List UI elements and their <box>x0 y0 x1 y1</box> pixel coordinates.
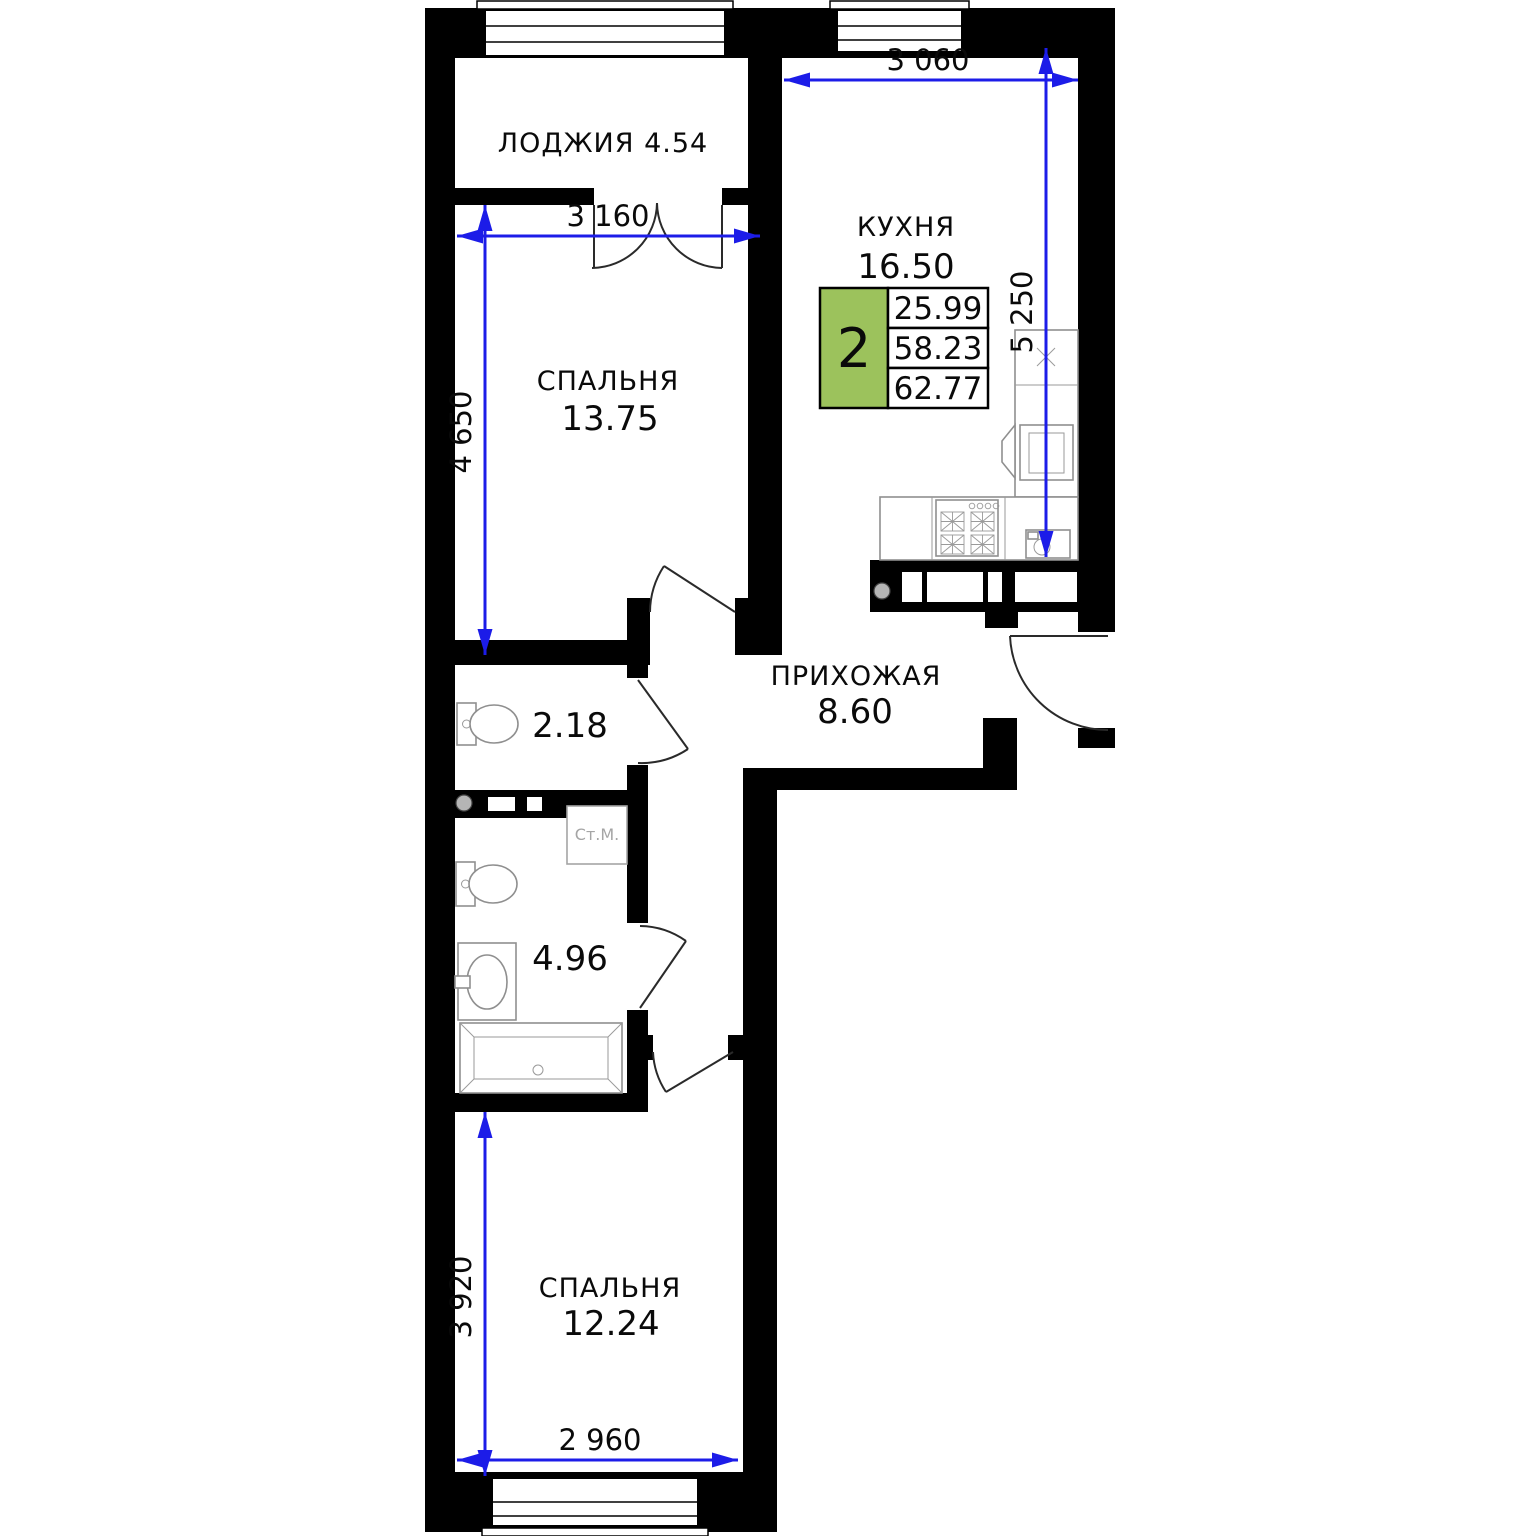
room-area-hallway: 8.60 <box>817 692 893 732</box>
bedroom2-window <box>482 1478 708 1536</box>
toilet-icon-bathroom <box>456 862 517 906</box>
room-label-bedroom1: СПАЛЬНЯ <box>537 366 680 397</box>
svg-text:3 060: 3 060 <box>886 43 969 77</box>
svg-text:2 960: 2 960 <box>558 1423 641 1457</box>
svg-text:4 650: 4 650 <box>444 390 478 473</box>
room-label-kitchen: КУХНЯ <box>857 212 955 243</box>
room-label-loggia: ЛОДЖИЯ 4.54 <box>498 128 708 159</box>
room-area-wc: 2.18 <box>532 706 608 746</box>
info-living-area: 25.99 <box>894 291 983 327</box>
room-area-bedroom1: 13.75 <box>561 399 658 439</box>
dim-bedroom2-width: 2 960 <box>457 1423 738 1468</box>
floor-plan-page: Ст.М. 3 060 5 250 3 160 <box>0 0 1536 1536</box>
info-usable-area: 58.23 <box>894 331 983 367</box>
dim-bedroom1-width: 3 160 <box>457 199 760 244</box>
bathtub-icon <box>460 1023 622 1093</box>
room-area-kitchen: 16.50 <box>857 247 954 287</box>
wc-door <box>638 680 688 763</box>
washing-machine-label: Ст.М. <box>575 825 619 844</box>
washing-machine: Ст.М. <box>567 806 627 864</box>
bedroom1-door <box>650 566 735 612</box>
room-area-bathroom: 4.96 <box>532 939 608 979</box>
kitchen-counter-icon <box>1002 330 1078 497</box>
loggia-window <box>477 1 733 56</box>
apartment-info-box: 2 25.99 58.23 62.77 <box>820 288 988 408</box>
svg-text:3 160: 3 160 <box>566 199 649 233</box>
toilet-icon-wc <box>457 703 518 745</box>
pipe-icon-bathroom <box>456 795 472 811</box>
stove-icon <box>936 500 999 556</box>
pipe-icon-kitchen <box>874 583 890 599</box>
floor-plan: Ст.М. 3 060 5 250 3 160 <box>0 0 1536 1536</box>
svg-text:5 250: 5 250 <box>1005 270 1039 353</box>
room-label-bedroom2: СПАЛЬНЯ <box>539 1273 682 1304</box>
svg-text:3 920: 3 920 <box>444 1255 478 1338</box>
bathroom-door <box>640 926 686 1008</box>
entrance-door <box>1010 636 1108 730</box>
info-total-area: 62.77 <box>894 371 983 407</box>
room-area-bedroom2: 12.24 <box>562 1304 659 1344</box>
room-label-hallway: ПРИХОЖАЯ <box>771 661 942 692</box>
bedroom2-door <box>653 1052 733 1092</box>
sink-icon <box>455 943 516 1020</box>
info-rooms-count: 2 <box>837 317 871 380</box>
